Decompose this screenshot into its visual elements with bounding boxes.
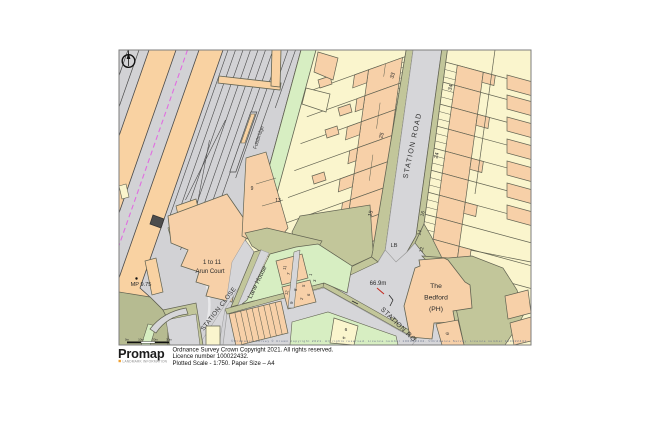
svg-text:Arun Court: Arun Court <box>195 269 224 275</box>
svg-text:30m: 30m <box>166 338 172 342</box>
svg-text:9: 9 <box>251 186 254 192</box>
svg-text:LANDMARK INFORMATION: LANDMARK INFORMATION <box>123 359 168 363</box>
svg-text:Ordnance Survey Crown Copyrigh: Ordnance Survey Crown Copyright 2021. Al… <box>173 347 334 353</box>
svg-text:The: The <box>430 283 442 290</box>
svg-text:6: 6 <box>345 327 348 333</box>
svg-text:Licence number 100022432.: Licence number 100022432. <box>173 354 249 360</box>
svg-text:20m: 20m <box>152 338 158 342</box>
svg-text:13: 13 <box>275 198 281 204</box>
svg-text:©Ordnance Survey © Crown copyr: ©Ordnance Survey © Crown copyright 2021.… <box>231 339 528 343</box>
svg-text:Plotted Scale - 1:750. Paper S: Plotted Scale - 1:750. Paper Size – A4 <box>173 361 276 367</box>
svg-text:0m: 0m <box>125 338 130 342</box>
svg-text:Bedford: Bedford <box>424 295 448 302</box>
svg-text:1 to 11: 1 to 11 <box>203 260 222 266</box>
svg-text:MP 9.75: MP 9.75 <box>131 282 152 288</box>
svg-text:66.9m: 66.9m <box>370 281 387 287</box>
svg-text:(PH): (PH) <box>429 306 443 313</box>
svg-text:10m: 10m <box>138 338 144 342</box>
svg-text:LB: LB <box>391 243 398 249</box>
